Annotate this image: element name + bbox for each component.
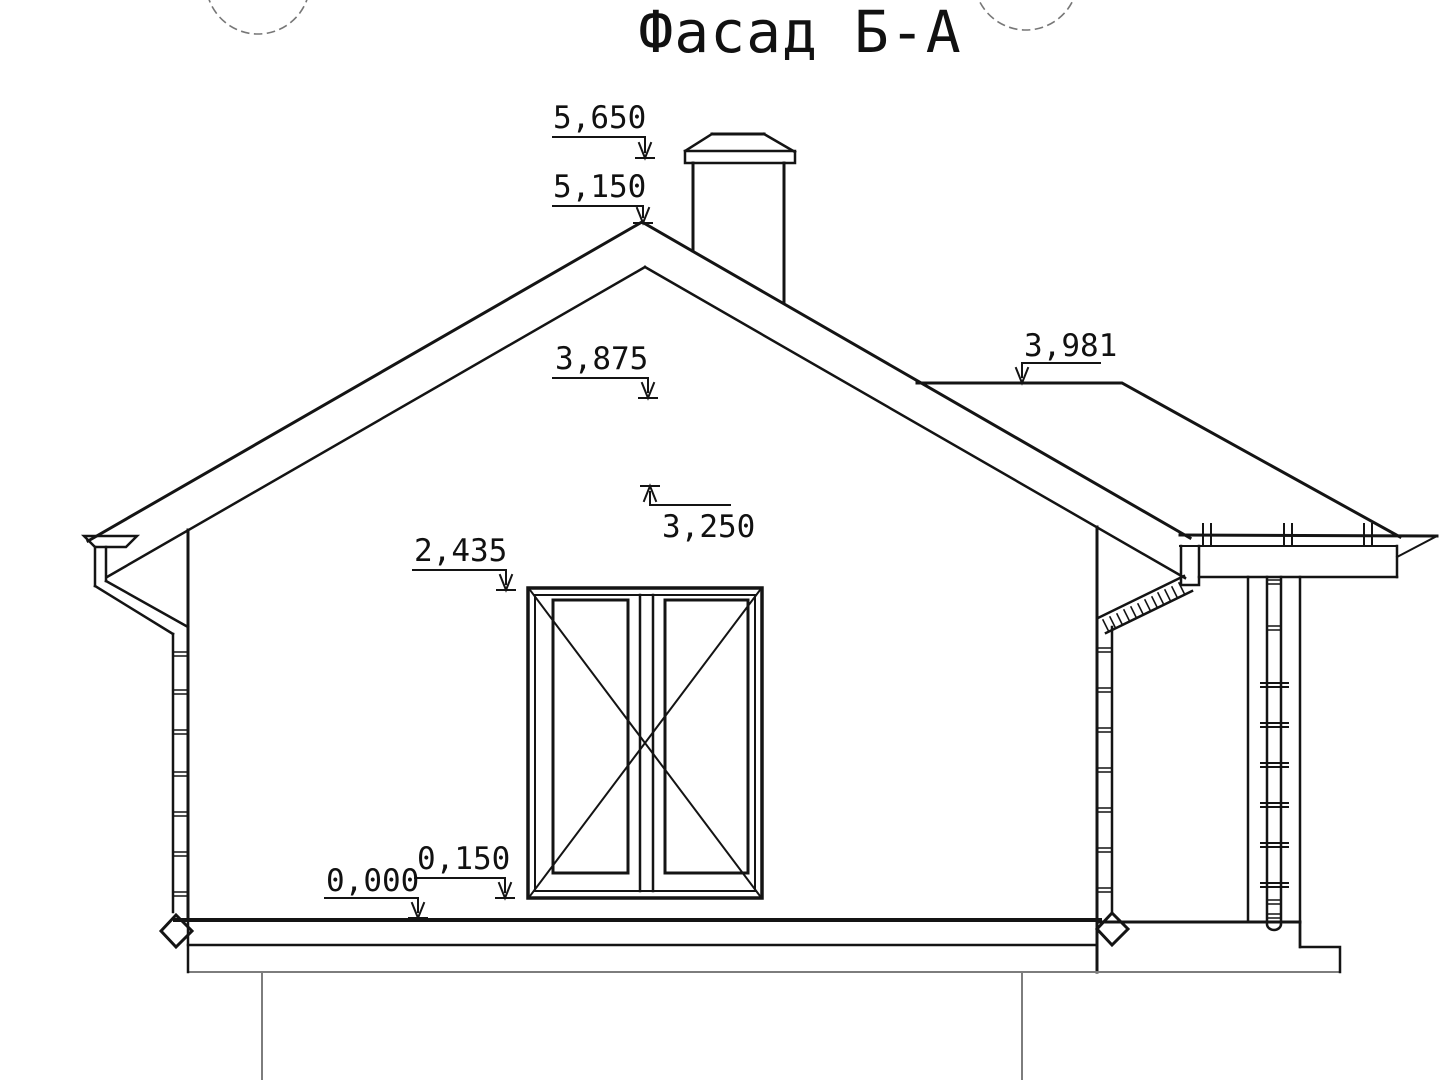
gutter-funnel-porch: [1181, 546, 1199, 585]
downspout-joints-right: [1097, 648, 1112, 892]
window-mullion: [640, 595, 653, 891]
drawing-sheet: Фасад Б-А: [0, 0, 1440, 1080]
foundation-piers: [262, 973, 1022, 1080]
downspout-joints-left: [173, 652, 188, 896]
dimension-window-top: 2,435: [413, 533, 515, 590]
dimension-label-eave: 3,875: [555, 341, 648, 377]
dimension-roof-ridge: 5,150: [553, 169, 652, 223]
dimension-label-window-top: 2,435: [414, 533, 507, 569]
dimension-ground: 0,000: [325, 863, 427, 918]
dimension-label-plinth: 0,150: [417, 841, 510, 877]
walls: [188, 527, 1097, 972]
dimension-upper-level: 3,250: [641, 486, 755, 545]
right-gutter-downspout: [1097, 576, 1192, 945]
left-gutter-downspout: [84, 536, 192, 947]
eave-band-right: [1098, 576, 1192, 633]
window-glazing-cross: [530, 590, 760, 896]
axis-bubble-right: [974, 0, 1078, 30]
dimension-label-ground: 0,000: [326, 863, 419, 899]
dimension-label-porch-roof: 3,981: [1024, 328, 1117, 364]
main-roof: [88, 222, 1190, 578]
foundation: [175, 920, 1340, 1080]
dimension-chimney-top: 5,650: [553, 100, 654, 158]
porch-roof: [917, 383, 1400, 537]
dimension-eave: 3,875: [553, 341, 657, 398]
facade-drawing: Фасад Б-А: [0, 0, 1440, 1080]
downspout-elbow-right: [1097, 913, 1128, 945]
dimension-label-chimney-top: 5,650: [553, 100, 646, 136]
window-left-sash: [553, 600, 628, 873]
dimension-label-upper-level: 3,250: [662, 509, 755, 545]
dimension-plinth: 0,150: [415, 841, 514, 898]
pipe-clamps: [1261, 683, 1288, 887]
dimension-label-roof-ridge: 5,150: [553, 169, 646, 205]
porch-gutter: [1180, 535, 1437, 536]
axis-bubble-left: [206, 0, 310, 34]
dimension-porch-roof: 3,981: [1013, 328, 1117, 383]
window: [528, 588, 762, 898]
window-right-sash: [665, 600, 748, 873]
porch-structure: [1180, 524, 1437, 947]
drawing-title: Фасад Б-А: [638, 0, 961, 66]
